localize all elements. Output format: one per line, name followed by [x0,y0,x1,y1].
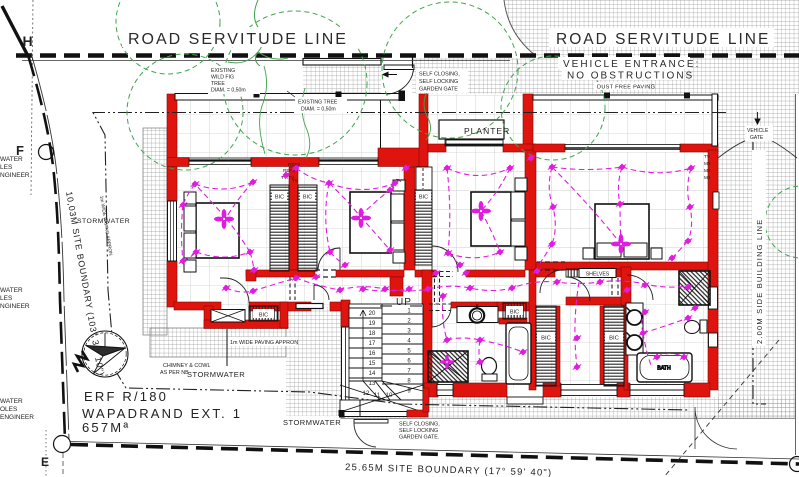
svg-text:SELF LOCKING: SELF LOCKING [419,79,458,85]
svg-text:20: 20 [369,311,376,317]
svg-text:18: 18 [369,331,376,337]
svg-text:LES: LES [0,295,13,302]
svg-text:PLANTER: PLANTER [464,126,510,136]
svg-text:1m WIDE PAVING APPRON: 1m WIDE PAVING APPRON [230,340,298,346]
svg-text:DUST FREE PAVING: DUST FREE PAVING [597,85,655,91]
svg-text:17: 17 [369,341,376,347]
svg-text:BATH: BATH [657,366,671,372]
svg-text:ROAD SERVITUDE LINE: ROAD SERVITUDE LINE [128,31,348,48]
svg-text:BIC: BIC [609,336,619,342]
svg-text:TREE: TREE [211,81,225,87]
svg-text:UP: UP [396,297,412,308]
svg-text:DIAM. = 0,50m: DIAM. = 0,50m [301,107,336,113]
svg-text:TV: TV [292,178,299,183]
svg-text:DIAM. = 0,50m: DIAM. = 0,50m [211,88,246,94]
svg-text:EXISTING TREE: EXISTING TREE [298,100,338,106]
svg-text:OLES: OLES [0,406,18,413]
svg-text:H: H [23,33,33,49]
svg-text:ERF R/180: ERF R/180 [84,389,168,404]
svg-text:SELF CLOSING,: SELF CLOSING, [399,422,440,428]
svg-text:STORMWATER: STORMWATER [187,370,245,379]
svg-text:WATER: WATER [0,398,23,405]
svg-text:19: 19 [369,321,376,327]
svg-text:BIC: BIC [275,195,284,201]
svg-text:M3: M3 [704,161,711,166]
svg-text:15: 15 [369,361,376,367]
svg-text:ROAD SERVITUDE LINE: ROAD SERVITUDE LINE [556,31,770,48]
svg-text:NO OBSTRUCTIONS: NO OBSTRUCTIONS [567,71,694,82]
svg-text:BIC: BIC [303,195,312,201]
svg-text:BIC: BIC [419,195,428,201]
svg-text:SELF LOCKING: SELF LOCKING [399,428,438,434]
svg-text:CHIMNEY & COWL: CHIMNEY & COWL [163,363,211,369]
svg-text:SELF CLOSING,: SELF CLOSING, [419,72,460,78]
svg-text:WATER: WATER [0,287,23,294]
svg-text:16: 16 [369,351,376,357]
svg-text:STORMWATER: STORMWATER [77,218,130,225]
svg-text:BIC: BIC [510,310,519,316]
svg-text:REFS: REFS [288,162,300,167]
svg-text:13: 13 [369,381,376,387]
svg-text:LES: LES [0,164,13,171]
svg-text:NGINEER: NGINEER [0,303,30,310]
svg-text:SHELVES: SHELVES [586,272,610,278]
svg-text:NGINEER: NGINEER [0,172,30,179]
svg-text:AS PER NB: AS PER NB [160,370,189,376]
svg-text:WILD FIG: WILD FIG [211,75,234,81]
svg-text:657Mª: 657Mª [82,420,130,435]
svg-text:VEHICLE ENTRANCE:: VEHICLE ENTRANCE: [563,59,700,70]
svg-text:GARDEN GATE: GARDEN GATE [419,87,458,93]
svg-text:STORMWATER: STORMWATER [283,418,341,427]
svg-text:EXISTING: EXISTING [211,68,235,74]
svg-text:M3: M3 [704,168,711,173]
svg-text:ENGINEER: ENGINEER [0,414,34,421]
svg-text:GATE: GATE [750,135,764,141]
svg-text:2.00M SIDE BUILDING LINE: 2.00M SIDE BUILDING LINE [755,219,764,345]
svg-text:GARDEN GATE.: GARDEN GATE. [399,435,439,441]
svg-text:14: 14 [369,371,376,377]
svg-text:WATER: WATER [0,156,23,163]
svg-text:BIC: BIC [541,336,551,342]
svg-text:E: E [41,455,49,469]
svg-text:M3: M3 [704,175,711,180]
svg-text:VEHICLE: VEHICLE [747,128,769,134]
svg-text:BIC: BIC [259,313,268,319]
svg-text:TV: TV [704,154,711,159]
svg-text:WAPADRAND EXT. 1: WAPADRAND EXT. 1 [82,406,242,421]
